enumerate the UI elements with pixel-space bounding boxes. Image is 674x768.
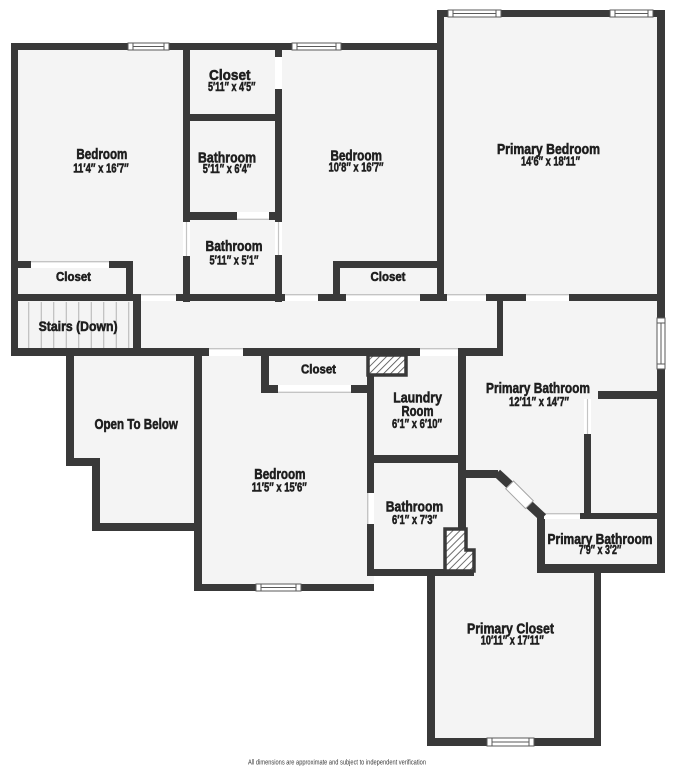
svg-text:7′9″ x 3′2″: 7′9″ x 3′2″ xyxy=(579,543,622,557)
svg-text:12′11″ x 14′7″: 12′11″ x 14′7″ xyxy=(509,395,569,409)
svg-text:10′11″ x 17′11″: 10′11″ x 17′11″ xyxy=(481,634,544,648)
svg-text:11′5″ x 15′6″: 11′5″ x 15′6″ xyxy=(252,481,307,495)
svg-text:Open To Below: Open To Below xyxy=(94,417,178,433)
svg-text:10′8″ x 16′7″: 10′8″ x 16′7″ xyxy=(329,161,384,175)
svg-text:5′11″ x 6′4″: 5′11″ x 6′4″ xyxy=(203,162,252,176)
svg-text:Stairs (Down): Stairs (Down) xyxy=(39,318,118,334)
svg-text:Closet: Closet xyxy=(301,362,337,376)
svg-text:5′11″ x 4′5″: 5′11″ x 4′5″ xyxy=(208,80,256,94)
svg-text:Closet: Closet xyxy=(371,270,407,284)
svg-text:6′1″ x 7′3″: 6′1″ x 7′3″ xyxy=(392,513,437,527)
svg-text:5′11″ x 5′1″: 5′11″ x 5′1″ xyxy=(210,254,259,268)
svg-text:All dimensions are approximate: All dimensions are approximate and subje… xyxy=(248,760,426,767)
svg-text:Closet: Closet xyxy=(56,270,92,284)
svg-text:6′1″ x 6′10″: 6′1″ x 6′10″ xyxy=(392,417,442,431)
svg-text:11′4″ x 16′7″: 11′4″ x 16′7″ xyxy=(73,161,128,175)
svg-text:14′6″ x 18′11″: 14′6″ x 18′11″ xyxy=(521,155,580,169)
